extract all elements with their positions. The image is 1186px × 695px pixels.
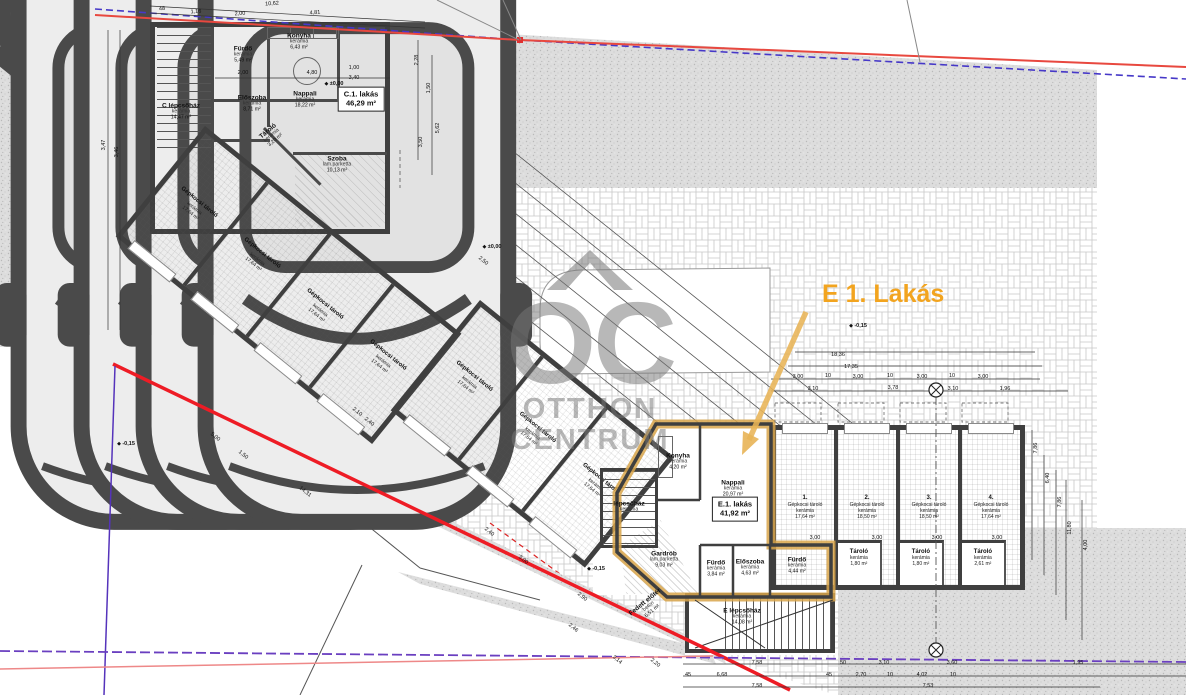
dimension-label: 3,46 <box>114 147 120 158</box>
room-label: Konyhakerámia4,20 m² <box>666 452 690 471</box>
storage-room: Tárolókerámia1,80 m² <box>838 540 882 585</box>
dimension-label: 7,58 <box>752 683 763 689</box>
elevation-marker-icon: ◆ <box>587 566 592 572</box>
elevation-marker-icon: ◆ <box>483 244 488 250</box>
room-label: Szobalam.parketta10,13 m² <box>323 155 352 174</box>
dimension-label: 1,00 <box>349 65 360 71</box>
dimension-label: 17,35 <box>844 364 858 370</box>
storage-room: Tárolókerámia1,80 m² <box>900 540 944 585</box>
dimension-label: 3,00 <box>917 374 928 380</box>
garage-bay: 4.Gépkocsi tárolókerámia17,64 m²Tárolóke… <box>962 430 1020 585</box>
garage-bay: 1.Gépkocsi tárolókerámia17,64 m² <box>776 430 838 585</box>
dimension-label: 10 <box>887 373 893 379</box>
dimension-label: 3,00 <box>810 535 821 541</box>
dimension-label: 10 <box>949 373 955 379</box>
room-label: Nappalikerámia18,22 m² <box>293 90 316 109</box>
dimension-label: 45 <box>685 672 691 678</box>
dimension-label: 3,10 <box>879 660 890 666</box>
dimension-label: 50 <box>840 660 846 666</box>
elevation-label: ◆ ±0,00 <box>325 81 344 87</box>
dimension-label: 2,00 <box>234 11 245 18</box>
dimension-label: 3,00 <box>932 535 943 541</box>
wall <box>211 99 341 102</box>
room-label: C lépcsőházkerámia14,47 m² <box>162 102 200 121</box>
garage-bays: 1.Gépkocsi tárolókerámia17,64 m²2.Gépkoc… <box>776 430 1020 585</box>
garage-bay: 2.Gépkocsi tárolókerámia18,50 m²Tárolóke… <box>838 430 900 585</box>
room-label: Konyhakerámia6,43 m² <box>287 32 311 51</box>
room-label: Fürdőkerámia3,84 m² <box>707 559 725 578</box>
elevation-label: ◆ -0,15 <box>117 441 135 447</box>
garage-building-right: 1.Gépkocsi tárolókerámia17,64 m²2.Gépkoc… <box>771 425 1025 590</box>
dimension-label: 2,00 <box>238 70 249 76</box>
elevation-label: ◆ -0,15 <box>587 566 605 572</box>
elevation-marker-icon: ◆ <box>325 81 330 87</box>
dimension-label: 3,00 <box>793 374 804 380</box>
dimension-label: 3,00 <box>872 535 883 541</box>
dimension-label: 10 <box>950 672 956 678</box>
dimension-label: 3,10 <box>948 386 959 392</box>
dimension-label: 3,47 <box>101 140 107 151</box>
room-label: lépcsőházkerámia <box>613 500 644 513</box>
storage-room: Tárolókerámia2,61 m² <box>962 540 1006 585</box>
dimension-label: 3,78 <box>888 385 899 391</box>
dimension-label: 4,00 <box>1083 540 1089 551</box>
dimension-label: 6,68 <box>717 672 728 678</box>
white-margin <box>1097 66 1186 528</box>
dimension-label: 10 <box>825 373 831 379</box>
dimension-label: 3,50 <box>418 137 424 148</box>
dimension-label: 3,00 <box>978 374 989 380</box>
room-label: E lépcsőházkerámia14,08 m² <box>723 607 761 626</box>
dimension-label: 2,70 <box>856 672 867 678</box>
garage-door <box>968 423 1014 434</box>
dimension-label: 5,62 <box>435 123 441 134</box>
dimension-label: 3,60 <box>947 660 958 666</box>
dimension-label: 1,50 <box>426 83 432 94</box>
garage-door <box>844 423 890 434</box>
dimension-label: 3,40 <box>349 75 360 81</box>
dimension-label: 48 <box>159 6 166 12</box>
garage-door <box>782 423 828 434</box>
unit-label: C.1. lakás46,29 m² <box>338 87 385 112</box>
dimension-label: 45 <box>826 672 832 678</box>
dimension-label: 3,00 <box>992 535 1003 541</box>
dimension-label: 10 <box>887 672 893 678</box>
room-label: Előszobakerámia4,63 m² <box>736 558 765 577</box>
dimension-label: 4,02 <box>917 672 928 678</box>
dimension-label: 1,95 <box>1073 660 1084 666</box>
dimension-label: 1,96 <box>1000 386 1011 392</box>
elevation-marker-icon: ◆ <box>117 441 122 447</box>
dimension-label: 7,58 <box>752 660 763 666</box>
dimension-label: 6,40 <box>1045 473 1051 484</box>
wall <box>267 27 270 127</box>
dimension-label: 2,28 <box>414 55 420 66</box>
elevation-marker-icon: ◆ <box>849 323 854 329</box>
dimension-label: 3,10 <box>808 386 819 392</box>
dimension-label: 1,16 <box>190 9 201 16</box>
dimension-label: 18,36 <box>831 352 845 358</box>
apartment-callout: E 1. Lakás <box>822 280 944 309</box>
dimension-label: 11,80 <box>1067 521 1073 534</box>
unit-label: E.1. lakás41,92 m² <box>712 497 758 522</box>
driveway-apron <box>540 268 770 374</box>
elevation-label: ◆ ±0,00 <box>483 244 502 250</box>
room-label: Gardróblam.parketta9,03 m² <box>650 550 679 569</box>
room-label: Előszobakerámia8,71 m² <box>238 94 267 113</box>
elevation-label: ◆ -0,15 <box>849 323 867 329</box>
dimension-label: 7,86 <box>1033 443 1039 454</box>
garage-door <box>906 423 952 434</box>
room-label: Fürdőkerámia4,44 m² <box>788 556 806 575</box>
dimension-label: 3,00 <box>853 374 864 380</box>
room-label: Fürdőkerámia5,49 m² <box>234 45 252 64</box>
dimension-label: 10,62 <box>265 1 279 8</box>
dimension-label: 7,53 <box>923 683 934 689</box>
dimension-label: 7,86 <box>1057 497 1063 508</box>
site-plan: Gépkocsi tárolókerámia17,64 m²Gépkocsi t… <box>0 0 1186 695</box>
garage-bay: 3.Gépkocsi tárolókerámia18,50 m²Tárolóke… <box>900 430 962 585</box>
dimension-label: 4,81 <box>309 10 320 17</box>
dimension-label: 4,80 <box>307 70 318 76</box>
